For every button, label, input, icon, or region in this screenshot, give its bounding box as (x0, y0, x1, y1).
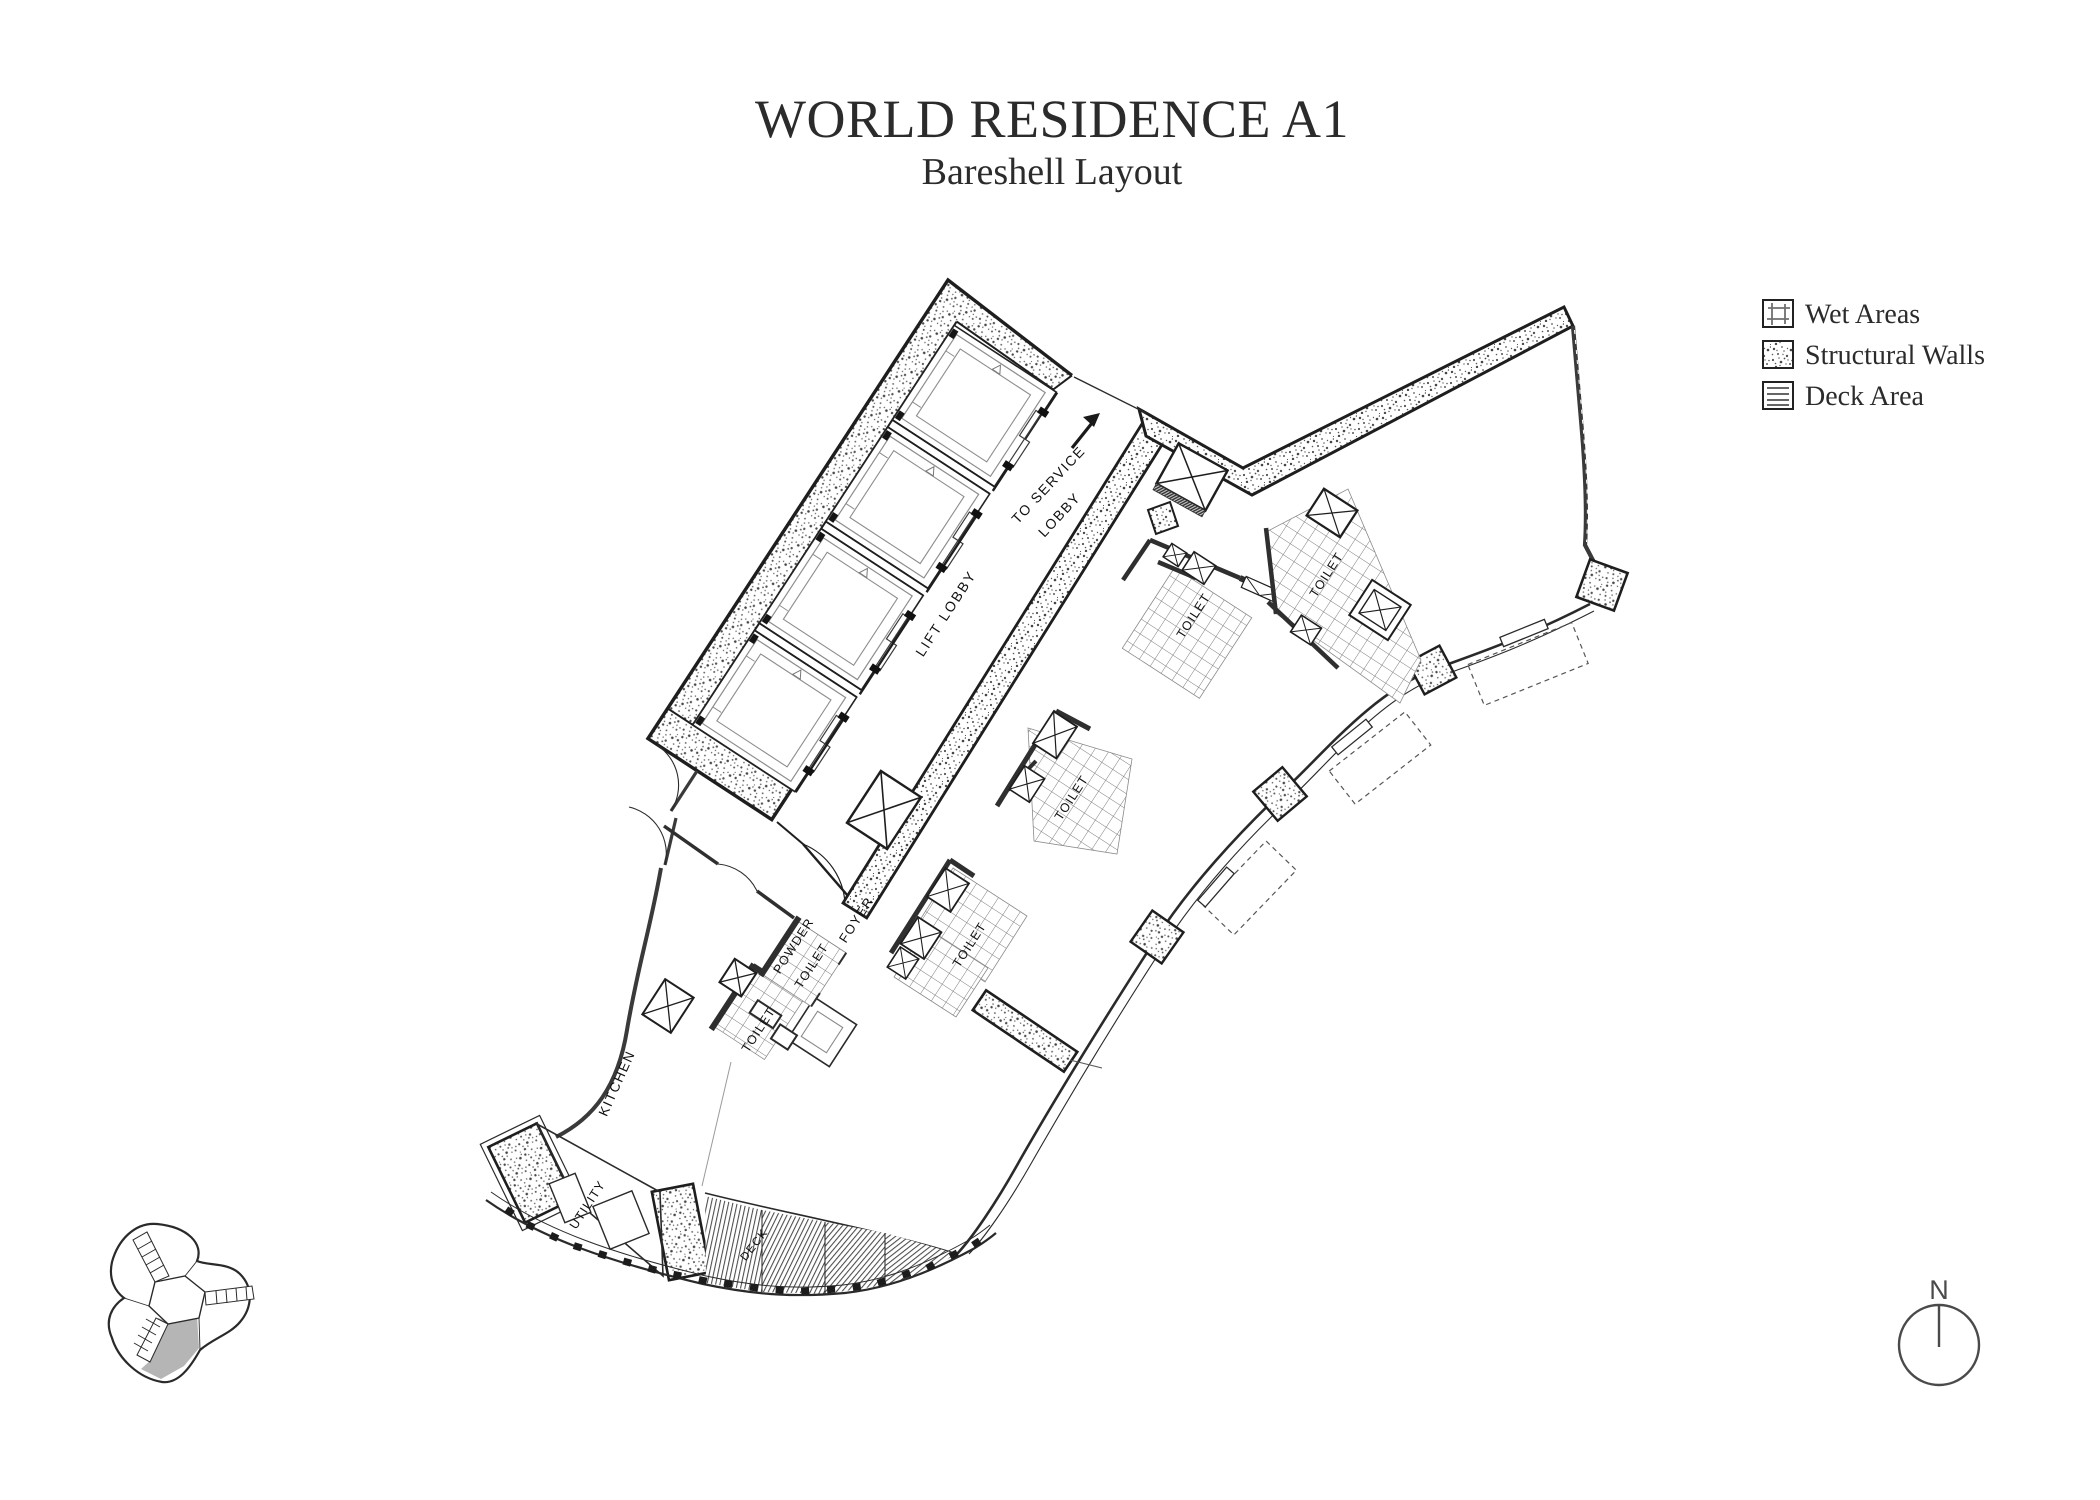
svg-text:WORLD RESIDENCE A1: WORLD RESIDENCE A1 (755, 89, 1349, 149)
svg-text:Deck Area: Deck Area (1805, 381, 1925, 412)
svg-text:Wet Areas: Wet Areas (1805, 299, 1920, 330)
svg-text:Bareshell Layout: Bareshell Layout (922, 151, 1183, 193)
svg-text:N: N (1929, 1275, 1949, 1305)
svg-text:Structural Walls: Structural Walls (1805, 340, 1985, 371)
